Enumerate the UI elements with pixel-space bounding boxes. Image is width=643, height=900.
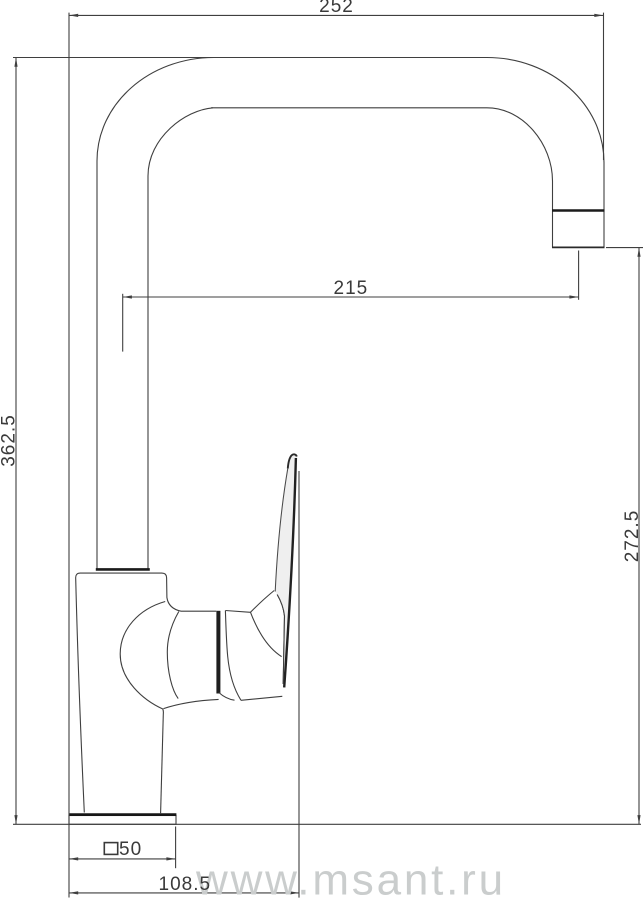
svg-text:362.5: 362.5 [0, 414, 19, 467]
svg-text:108.5: 108.5 [159, 874, 212, 895]
svg-text:50: 50 [119, 839, 142, 860]
svg-text:215: 215 [334, 278, 369, 299]
svg-text:272.5: 272.5 [622, 510, 643, 563]
svg-text:252: 252 [319, 0, 354, 17]
svg-text:www.msant.ru: www.msant.ru [195, 856, 506, 900]
